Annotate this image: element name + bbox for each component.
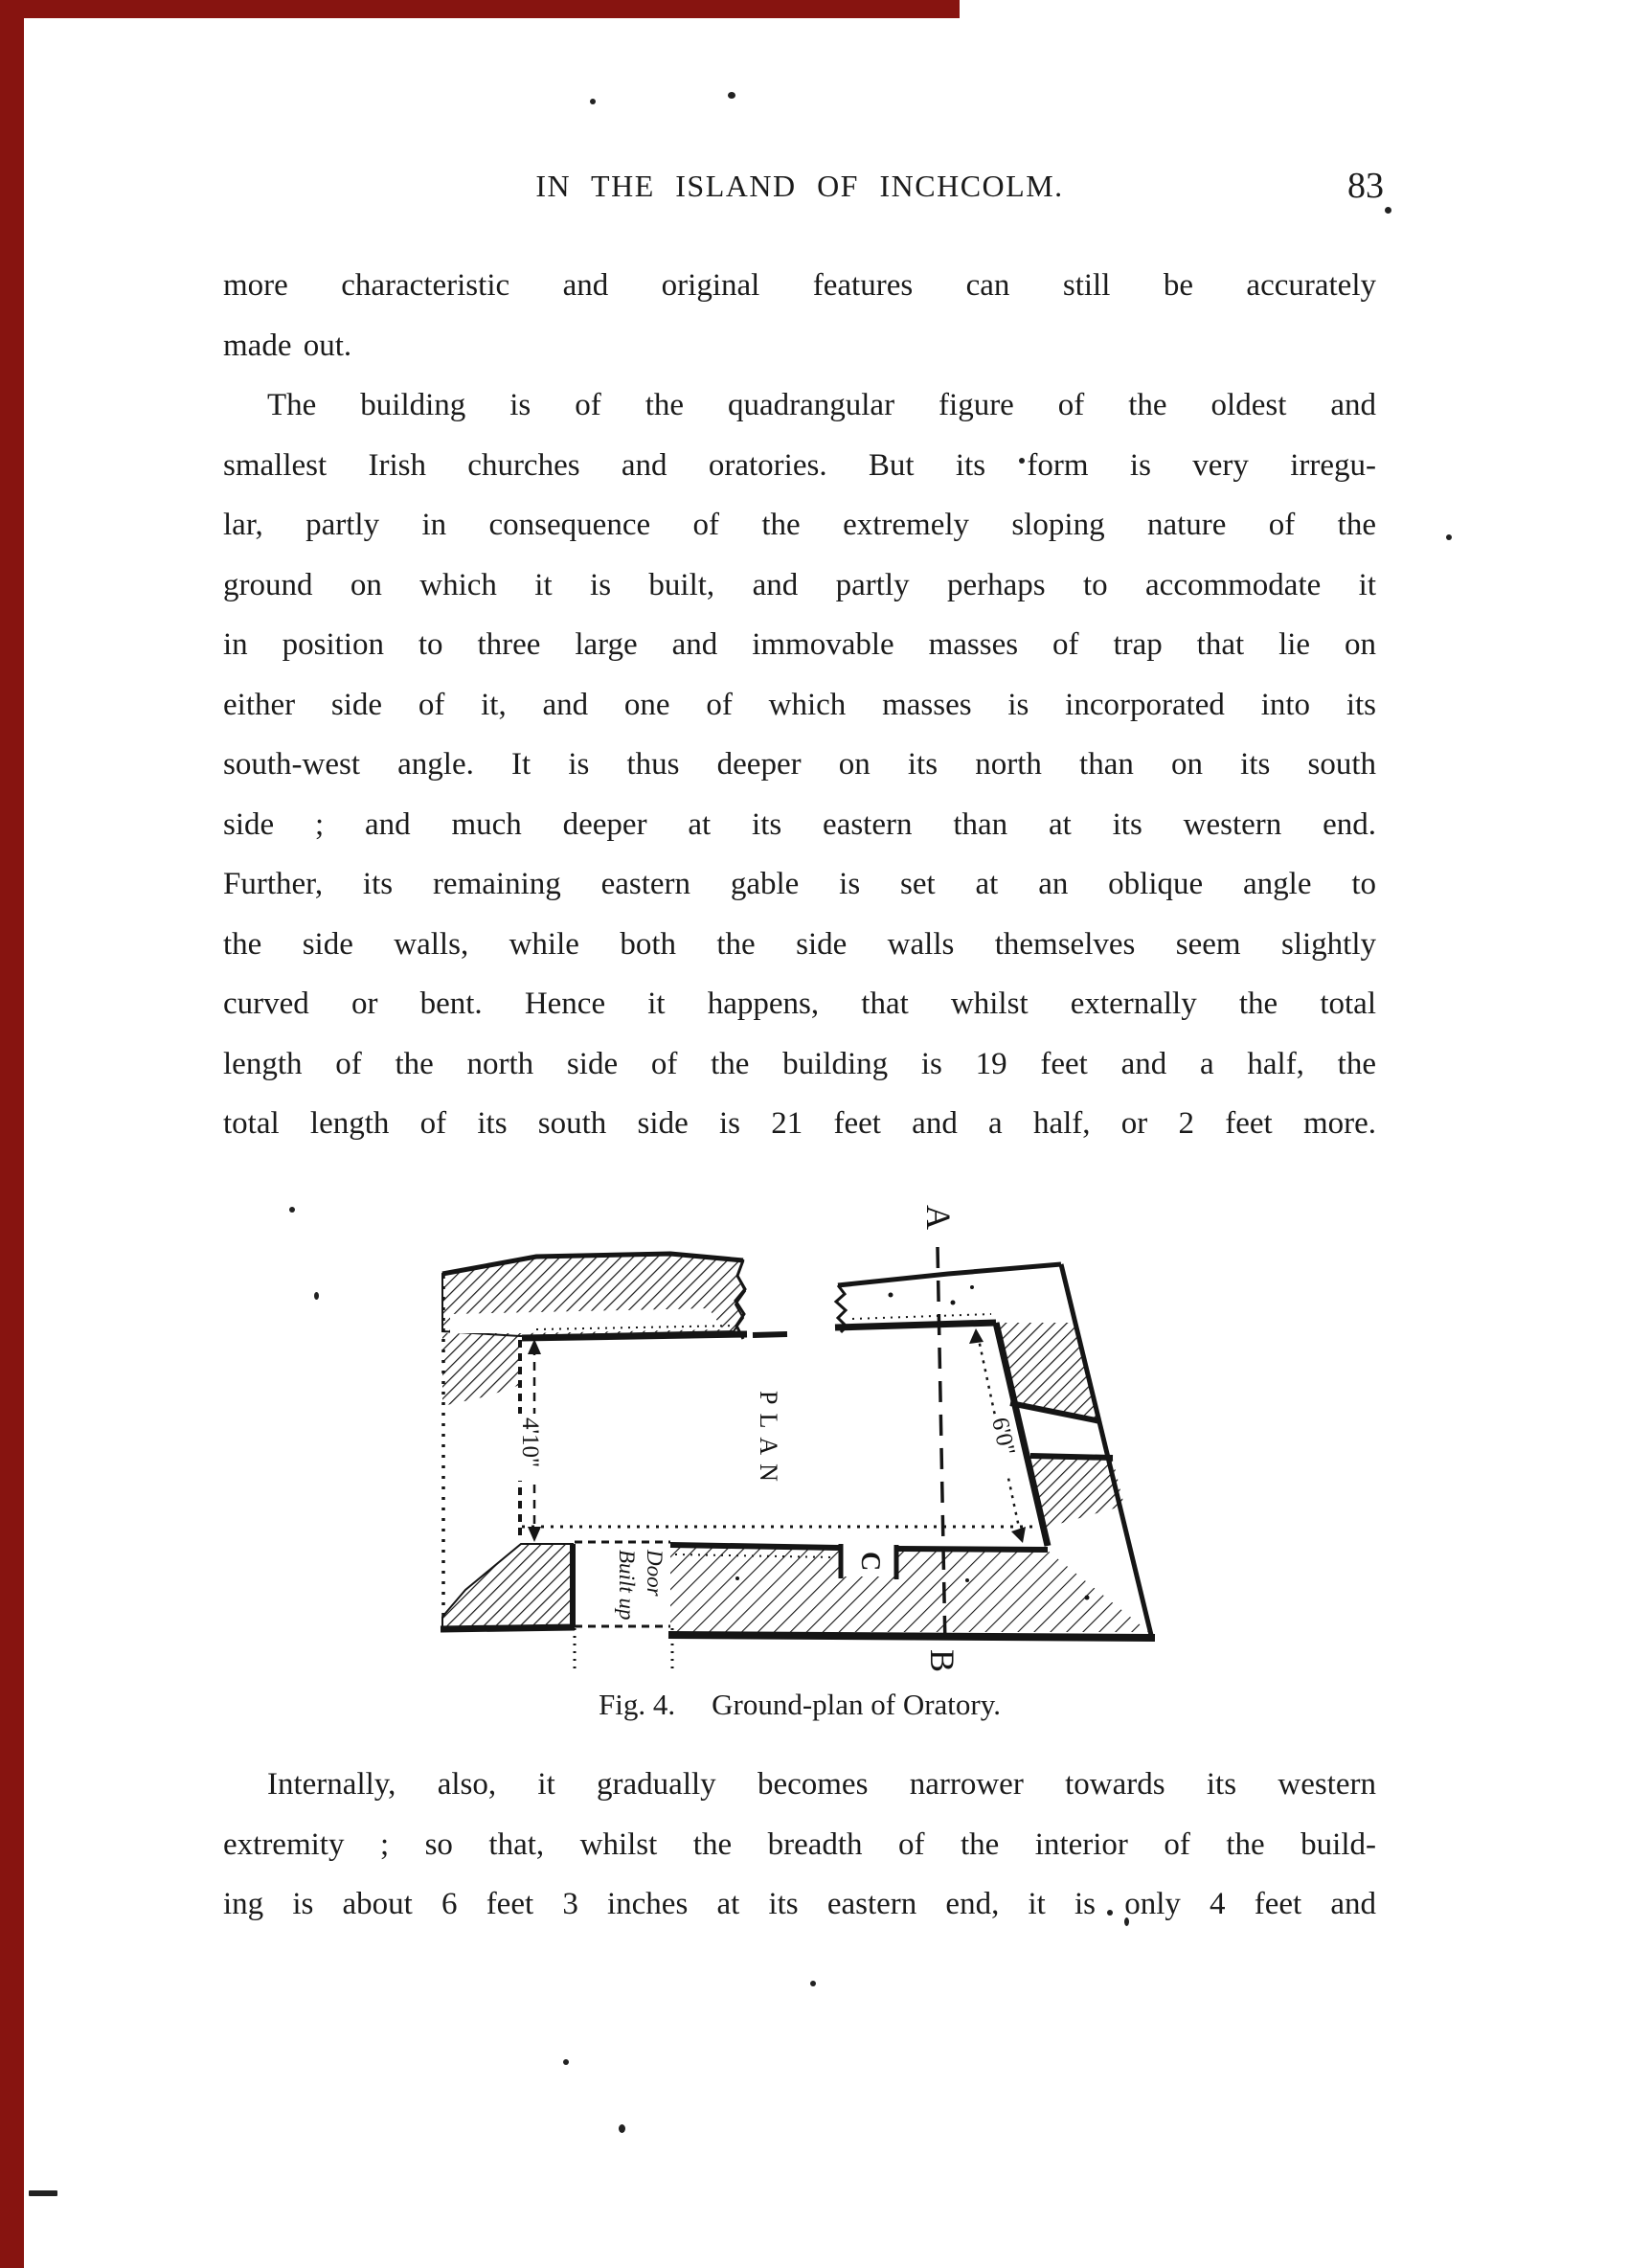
- inner-wall-north-west-segment: [522, 1334, 747, 1338]
- text-line: in position to three large and immovable…: [223, 615, 1376, 675]
- figure-caption-title: Ground-plan of Oratory.: [712, 1688, 1001, 1721]
- engraving-speck: [889, 1293, 893, 1298]
- svg-text:Door Built up: Door Built up: [615, 1549, 667, 1620]
- figure-caption-number: Fig. 4.: [599, 1688, 675, 1721]
- text-line: smallest Irish churches and oratories. B…: [223, 436, 1376, 496]
- outer-edge-southwest: [441, 1627, 575, 1629]
- east-opening-edge-lower: [1030, 1456, 1113, 1458]
- text-line: extremity ; so that, whilst the breadth …: [223, 1815, 1376, 1875]
- scan-speck: [314, 1292, 319, 1300]
- text-line: the side walls, while both the side wall…: [223, 915, 1376, 975]
- scan-speck: [289, 1207, 295, 1213]
- label-door-built-up: Door Built up: [615, 1549, 667, 1620]
- scan-speck: [619, 2124, 625, 2133]
- text-line: length of the north side of the building…: [223, 1034, 1376, 1095]
- text-line: The building is of the quadrangular figu…: [223, 375, 1376, 436]
- inner-wall-south-left: [670, 1545, 839, 1548]
- text-line: either side of it, and one of which mass…: [223, 675, 1376, 736]
- scan-speck: [1446, 534, 1452, 540]
- label-c: C: [855, 1552, 885, 1571]
- text-line: Further, its remaining eastern gable is …: [223, 854, 1376, 915]
- text-line: Internally, also, it gradually becomes n…: [223, 1755, 1376, 1815]
- page-number: 83: [1302, 165, 1384, 207]
- main-text-block: more characteristic and original feature…: [223, 256, 1376, 1154]
- engraving-speck: [735, 1576, 739, 1580]
- inner-wall-north-mid-segment: [753, 1334, 787, 1335]
- engraving-speck: [951, 1301, 956, 1305]
- scan-speck: [1107, 1910, 1113, 1916]
- scan-speck: [810, 1981, 816, 1986]
- inner-wall-north-east-segment: [835, 1323, 996, 1327]
- scan-speck: [563, 2059, 569, 2065]
- dimension-label-west: 4'10": [517, 1414, 546, 1481]
- text-line: curved or bent. Hence it happens, that w…: [223, 974, 1376, 1034]
- figure-ground-plan: 4'10" 6'0" A B C PLAN Do: [421, 1188, 1187, 1686]
- ground-plan-drawing: 4'10" 6'0" A B C PLAN Do: [421, 1188, 1187, 1686]
- arrowhead-down-icon: [528, 1527, 541, 1542]
- arrowhead-up-icon: [528, 1339, 541, 1354]
- engraving-speck: [970, 1285, 974, 1289]
- label-plan: PLAN: [755, 1391, 782, 1490]
- arrowhead-down-icon: [1011, 1527, 1026, 1543]
- text-line: lar, partly in consequence of the extrem…: [223, 495, 1376, 556]
- label-a: A: [919, 1205, 958, 1230]
- text-line: more characteristic and original feature…: [223, 256, 1376, 316]
- text-line: south-west angle. It is thus deeper on i…: [223, 735, 1376, 795]
- arrowhead-up-icon: [969, 1328, 984, 1344]
- engraving-speck: [965, 1578, 969, 1582]
- scan-speck: [1124, 1917, 1129, 1926]
- book-page-scan: IN THE ISLAND OF INCHCOLM. 83 more chara…: [0, 0, 1651, 2268]
- text-line: ground on which it is built, and partly …: [223, 556, 1376, 616]
- svg-text:4'10": 4'10": [517, 1417, 543, 1467]
- figure-caption: Fig. 4.Ground-plan of Oratory.: [223, 1688, 1376, 1722]
- label-b: B: [923, 1649, 961, 1672]
- wall-southwest-corner: [442, 1544, 573, 1629]
- text-line: ing is about 6 feet 3 inches at its east…: [223, 1874, 1376, 1935]
- bottom-text-block: Internally, also, it gradually becomes n…: [223, 1755, 1376, 1935]
- engraving-speck: [1085, 1596, 1090, 1600]
- text-line: total length of its south side is 21 fee…: [223, 1094, 1376, 1154]
- text-line: side ; and much deeper at its eastern th…: [223, 795, 1376, 855]
- scan-speck: [1019, 458, 1025, 464]
- scan-edge-left: [0, 0, 24, 2268]
- text-line: made out.: [223, 316, 1376, 376]
- scan-speck: [728, 92, 735, 99]
- scan-mark-dash: [29, 2190, 57, 2196]
- wall-west-upper: [442, 1333, 520, 1406]
- svg-text:6'0": 6'0": [986, 1416, 1020, 1458]
- scan-speck: [1385, 207, 1391, 214]
- inner-wall-south-right: [898, 1549, 1048, 1550]
- outer-edge-south: [668, 1635, 1155, 1638]
- scan-speck: [590, 99, 596, 104]
- scan-edge-top: [0, 0, 960, 18]
- running-header: IN THE ISLAND OF INCHCOLM.: [223, 169, 1376, 204]
